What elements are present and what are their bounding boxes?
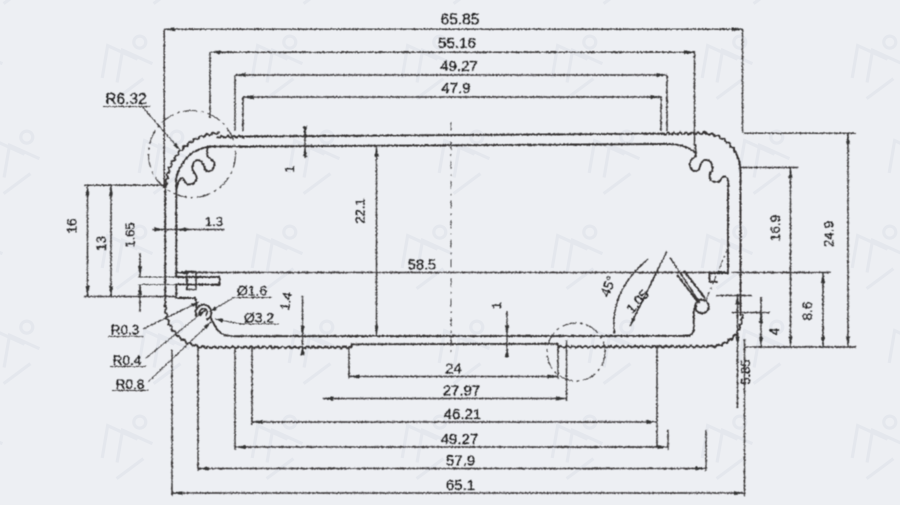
svg-text:4: 4 xyxy=(767,327,782,335)
svg-text:27.97: 27.97 xyxy=(443,382,481,399)
svg-text:R0.3: R0.3 xyxy=(111,323,140,338)
svg-text:13: 13 xyxy=(94,236,109,251)
svg-text:Ø1.6: Ø1.6 xyxy=(237,283,268,299)
svg-text:57.9: 57.9 xyxy=(446,452,475,469)
svg-text:R0.8: R0.8 xyxy=(116,377,145,392)
svg-text:5.85: 5.85 xyxy=(738,359,753,384)
svg-text:49.27: 49.27 xyxy=(441,431,479,448)
svg-text:65.1: 65.1 xyxy=(446,477,475,494)
svg-text:R6.32: R6.32 xyxy=(105,91,146,108)
svg-text:1.3: 1.3 xyxy=(205,214,223,229)
svg-text:1.65: 1.65 xyxy=(123,222,138,247)
svg-text:1: 1 xyxy=(282,165,297,172)
svg-text:8.6: 8.6 xyxy=(800,302,815,321)
svg-text:46.21: 46.21 xyxy=(444,406,482,423)
svg-text:24: 24 xyxy=(445,360,462,377)
svg-text:65.85: 65.85 xyxy=(441,11,480,28)
svg-text:58.5: 58.5 xyxy=(408,258,436,274)
svg-text:Ø3.2: Ø3.2 xyxy=(244,310,275,326)
svg-text:1.4: 1.4 xyxy=(277,291,295,311)
svg-text:22.1: 22.1 xyxy=(353,198,368,223)
svg-text:24.9: 24.9 xyxy=(822,221,837,247)
svg-text:1: 1 xyxy=(489,302,504,309)
svg-text:47.9: 47.9 xyxy=(441,80,470,97)
svg-text:16.9: 16.9 xyxy=(768,215,783,241)
svg-text:49.27: 49.27 xyxy=(440,58,478,75)
svg-text:16: 16 xyxy=(65,218,80,233)
svg-text:R0.4: R0.4 xyxy=(113,353,142,368)
svg-text:55.16: 55.16 xyxy=(438,35,476,52)
